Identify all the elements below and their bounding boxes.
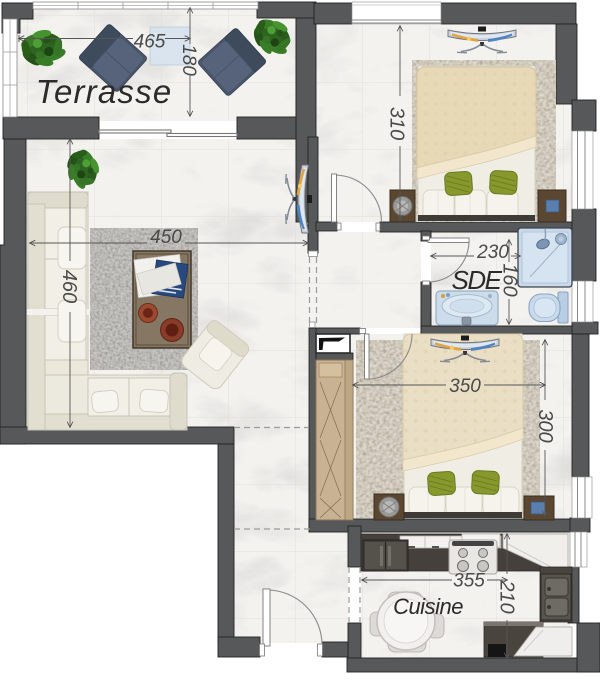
svg-text:350: 350	[449, 376, 481, 397]
svg-text:230: 230	[476, 242, 509, 263]
svg-text:355: 355	[453, 571, 485, 592]
svg-text:450: 450	[150, 227, 182, 248]
svg-text:160: 160	[499, 263, 521, 296]
svg-text:Cuisine: Cuisine	[393, 594, 463, 619]
svg-text:310: 310	[386, 107, 408, 140]
svg-text:SDE: SDE	[452, 265, 503, 295]
svg-text:300: 300	[534, 409, 556, 442]
svg-text:210: 210	[496, 579, 518, 613]
svg-text:Terrasse: Terrasse	[36, 73, 173, 110]
svg-text:180: 180	[178, 44, 199, 76]
svg-text:465: 465	[134, 32, 166, 53]
svg-text:460: 460	[58, 270, 80, 303]
